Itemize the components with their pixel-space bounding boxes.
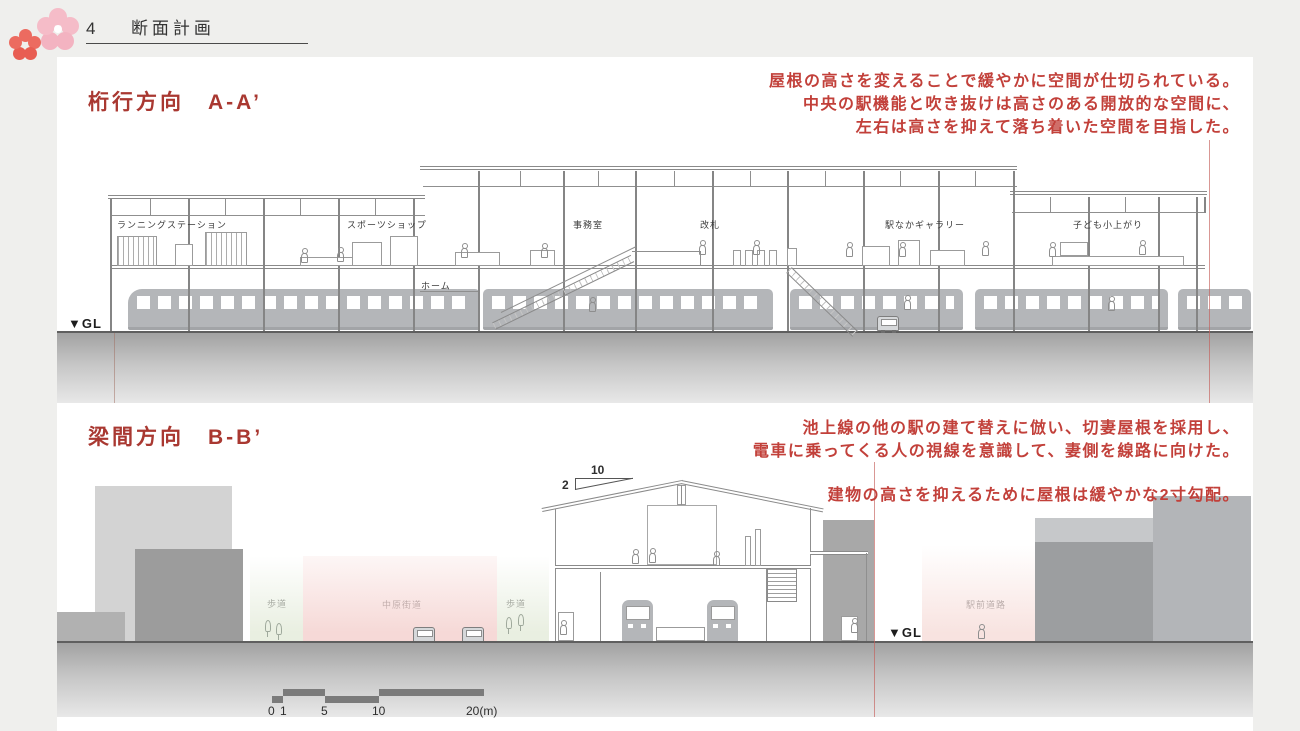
person-figure <box>336 247 344 262</box>
scale-tick-1: 1 <box>280 704 287 718</box>
ticket-machine <box>787 248 797 266</box>
sakura-flower-icon <box>36 8 80 52</box>
interior-wall <box>600 572 601 641</box>
roof-left-wing <box>108 195 425 199</box>
section-b-title: 梁間方向 B-B’ <box>88 421 263 451</box>
gl-marker-a: ▼GL <box>68 316 102 331</box>
station-stair <box>767 568 797 602</box>
header-number: 4 <box>86 19 99 38</box>
mullion-line <box>520 171 521 187</box>
vent-pipe <box>681 485 682 505</box>
mullion-line <box>975 171 976 187</box>
section-a-annotation: 屋根の高さを変えることで緩やかに空間が仕切られている。 中央の駅機能と吹き抜けは… <box>769 70 1240 139</box>
beam-line-center <box>423 186 1017 187</box>
person-figure <box>559 620 567 635</box>
page-header: 4 断面計画 <box>86 14 308 44</box>
neighbor-building <box>1035 518 1153 542</box>
cut-line <box>114 333 115 403</box>
ground-band-a <box>57 333 1253 403</box>
mullion-line <box>225 199 226 216</box>
ticket-gate <box>769 250 777 266</box>
scale-segment <box>283 689 325 696</box>
headlights <box>628 624 633 628</box>
section-b-annotation: 池上線の他の駅の建て替えに倣い、切妻屋根を採用し、 電車に乗ってくる人の視線を意… <box>753 417 1240 463</box>
person-figure <box>648 548 656 563</box>
person-figure <box>903 295 911 310</box>
roof-center <box>420 166 1017 170</box>
mullion-line <box>300 199 301 216</box>
gallery-display <box>862 246 890 266</box>
shelf-unit <box>117 236 157 266</box>
scale-tick-0: 0 <box>268 704 275 718</box>
person-figure <box>981 241 989 256</box>
annex-roof <box>810 551 868 555</box>
annotation-line: 左右は高さを抑えて落ち着いた空間を目指した。 <box>769 116 1240 139</box>
neighbor-building <box>135 549 243 641</box>
plum-flower-icon <box>9 29 41 61</box>
presentation-board: 4 断面計画 桁行方向 A-A’ 屋根の高さを変えることで緩やかに空間が仕切られ… <box>0 0 1300 731</box>
gallery-display <box>930 250 965 266</box>
label-kids-area: 子ども小上がり <box>1073 218 1143 231</box>
train-windows <box>984 296 1159 309</box>
person-figure <box>631 549 639 564</box>
second-floor-slab <box>110 265 1205 269</box>
column-line <box>1196 197 1198 331</box>
train-front <box>707 600 738 643</box>
platform-label-line <box>420 291 478 292</box>
table <box>300 257 356 266</box>
annex-wall <box>866 553 867 641</box>
slope-run: 10 <box>591 463 604 477</box>
station-wall-right <box>810 508 811 641</box>
flower-center <box>54 25 62 33</box>
locker <box>175 244 193 266</box>
column-line <box>478 171 480 331</box>
neighbor-building <box>1153 496 1251 641</box>
column-line <box>263 199 265 331</box>
person-figure <box>1107 296 1115 311</box>
label-running-station: ランニングステーション <box>117 218 227 231</box>
label-gallery: 駅なかギャラリー <box>885 218 965 231</box>
clerestory-line-right <box>1012 212 1205 213</box>
train-front <box>622 600 653 643</box>
scale-segment <box>272 696 283 703</box>
scale-segment <box>379 689 484 696</box>
kids-furniture <box>1060 242 1088 256</box>
section-b-annotation-2: 建物の高さを抑えるために屋根は緩やかな2寸勾配。 <box>828 484 1240 507</box>
scale-tick-5: 5 <box>321 704 328 718</box>
person-figure <box>698 240 706 255</box>
column-line <box>1204 197 1206 213</box>
headlights <box>713 624 718 628</box>
scale-tick-10: 10 <box>372 704 385 718</box>
person-figure <box>752 240 760 255</box>
person-figure <box>850 618 858 633</box>
slope-rise: 2 <box>562 478 569 492</box>
mullion-line <box>375 199 376 216</box>
mullion-line <box>900 171 901 187</box>
tree-figure <box>504 617 513 634</box>
ground-band-b <box>57 643 1253 717</box>
windshield <box>626 606 650 620</box>
car <box>462 627 484 642</box>
display-rack <box>352 242 382 266</box>
label-office: 事務室 <box>573 218 603 231</box>
landing-line <box>632 251 700 252</box>
clerestory-line-left <box>110 215 425 216</box>
neighbor-building <box>1035 542 1153 641</box>
neighbor-building <box>57 612 125 641</box>
shelf-unit <box>205 232 247 266</box>
mullion-line <box>150 199 151 216</box>
scale-tick-20: 20(m) <box>466 704 497 718</box>
cut-line <box>1209 140 1210 403</box>
annotation-line: 屋根の高さを変えることで緩やかに空間が仕切られている。 <box>769 70 1240 93</box>
column-line <box>110 199 112 331</box>
tree-figure <box>274 623 283 640</box>
person-figure <box>460 243 468 258</box>
person-figure <box>540 243 548 258</box>
mullion-line <box>1050 197 1051 213</box>
mullion-line <box>1125 197 1126 213</box>
column-line <box>1013 171 1015 331</box>
tree-figure <box>263 620 272 637</box>
annotation-line: 中央の駅機能と吹き抜けは高さのある開放的な空間に、 <box>769 93 1240 116</box>
person-figure <box>1138 240 1146 255</box>
roof-right-wing <box>1010 191 1207 195</box>
duct <box>755 529 761 566</box>
display-rack <box>390 236 418 266</box>
person-figure <box>1048 242 1056 257</box>
petal <box>9 36 22 49</box>
mullion-line <box>674 171 675 187</box>
scale-segment <box>325 696 379 703</box>
person-figure <box>977 624 985 639</box>
mullion-line <box>750 171 751 187</box>
ticket-gate <box>733 250 741 266</box>
annotation-line: 池上線の他の駅の建て替えに倣い、切妻屋根を採用し、 <box>753 417 1240 440</box>
person-figure <box>588 297 596 312</box>
person-figure <box>300 248 308 263</box>
section-a-title: 桁行方向 A-A’ <box>88 86 262 116</box>
person-figure <box>845 242 853 257</box>
station-wall-left <box>555 509 556 641</box>
person-figure <box>898 242 906 257</box>
island-platform <box>656 627 705 641</box>
label-sports-shop: スポーツショップ <box>347 218 427 231</box>
gl-marker-b: ▼GL <box>888 625 922 640</box>
duct <box>745 536 751 566</box>
person-figure <box>712 551 720 566</box>
column-line <box>712 171 714 331</box>
annotation-line: 電車に乗ってくる人の視線を意識して、妻側を線路に向けた。 <box>753 440 1240 463</box>
tree-figure <box>516 614 525 631</box>
mullion-line <box>598 171 599 187</box>
mullion-line <box>825 171 826 187</box>
kids-raised-floor <box>1052 256 1184 266</box>
column-line <box>563 171 565 331</box>
label-ticket-gate: 改札 <box>700 218 720 231</box>
car <box>413 627 435 642</box>
service-van <box>877 316 899 331</box>
windshield <box>711 606 735 620</box>
atrium-volume <box>647 505 717 565</box>
page-title: 断面計画 <box>131 19 215 38</box>
